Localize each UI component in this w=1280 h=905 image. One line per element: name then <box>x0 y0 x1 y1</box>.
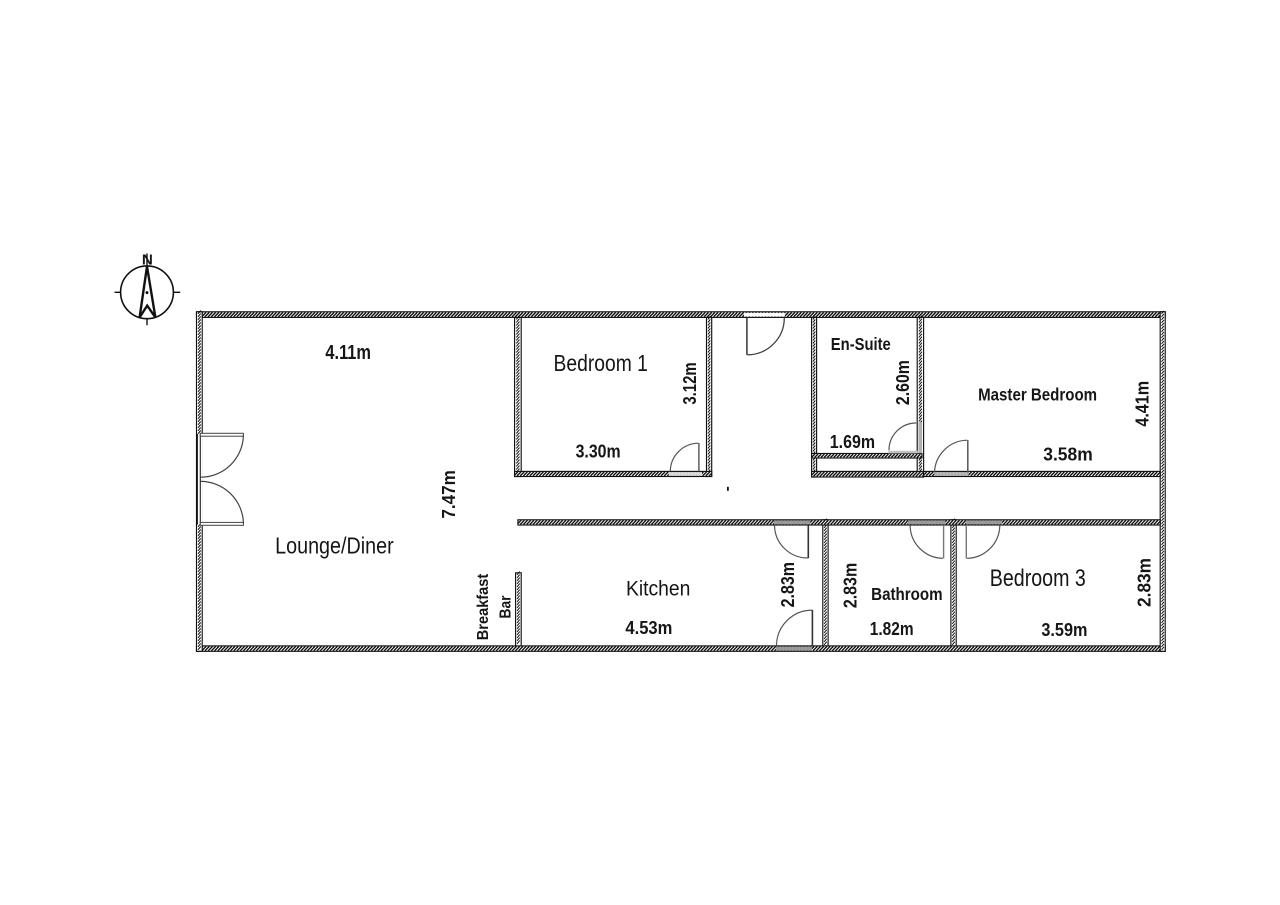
svg-text:2.83m: 2.83m <box>1134 558 1155 607</box>
svg-text:Kitchen: Kitchen <box>626 578 691 601</box>
svg-text:4.41m: 4.41m <box>1132 381 1153 427</box>
svg-text:N: N <box>142 252 153 269</box>
svg-text:3.12m: 3.12m <box>679 362 700 404</box>
svg-text:1.82m: 1.82m <box>870 618 914 639</box>
svg-text:Bathroom: Bathroom <box>871 584 943 604</box>
svg-text:4.11m: 4.11m <box>325 342 371 364</box>
svg-text:2.60m: 2.60m <box>892 360 913 405</box>
svg-text:3.58m: 3.58m <box>1043 444 1093 465</box>
svg-text:3.59m: 3.59m <box>1041 619 1087 640</box>
svg-text:1.69m: 1.69m <box>830 431 875 452</box>
svg-text:3.30m: 3.30m <box>576 441 621 462</box>
svg-text:Bedroom 3: Bedroom 3 <box>990 565 1086 592</box>
svg-text:Master Bedroom: Master Bedroom <box>978 385 1097 405</box>
svg-text:7.47m: 7.47m <box>438 470 459 519</box>
svg-text:Breakfast: Breakfast <box>475 574 492 641</box>
svg-text:Bedroom 1: Bedroom 1 <box>554 350 648 376</box>
svg-text:Lounge/Diner: Lounge/Diner <box>275 533 394 559</box>
svg-text:2.83m: 2.83m <box>777 562 798 607</box>
svg-text:En-Suite: En-Suite <box>831 334 891 354</box>
svg-text:4.53m: 4.53m <box>625 617 672 638</box>
svg-text:2.83m: 2.83m <box>839 563 860 608</box>
svg-text:Bar: Bar <box>497 596 514 619</box>
